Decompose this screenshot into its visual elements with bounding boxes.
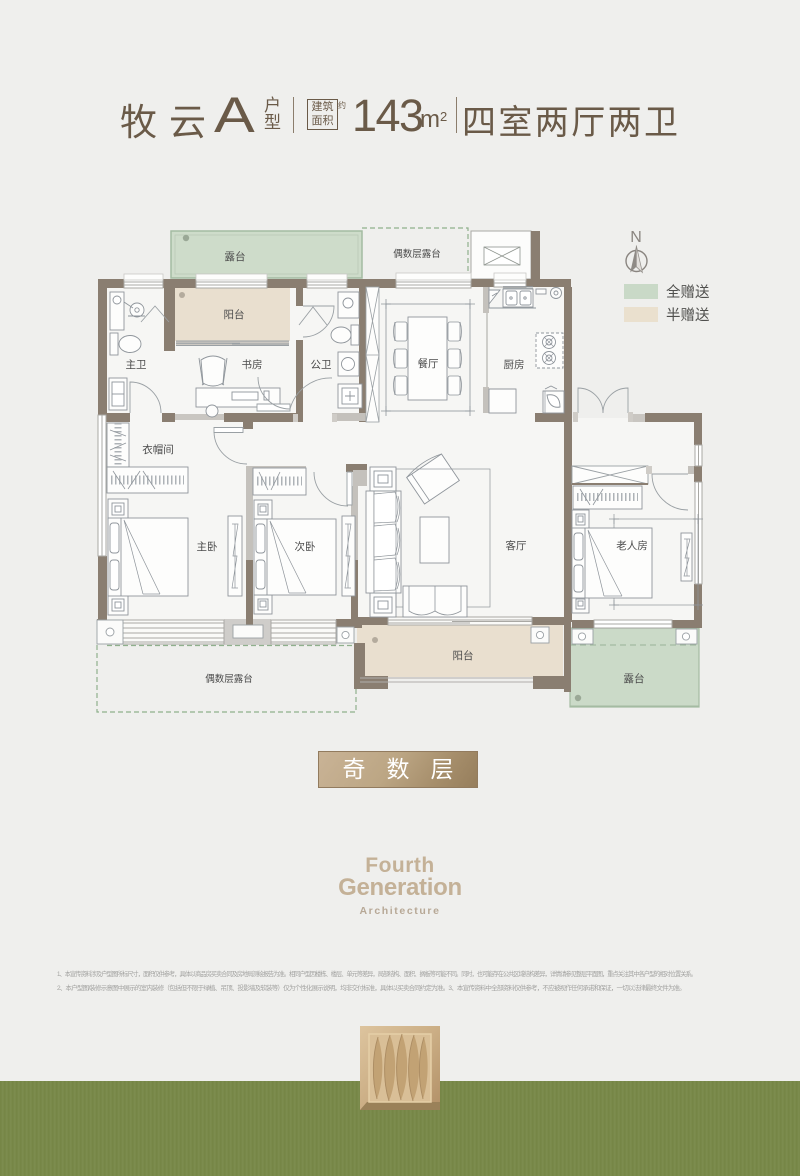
svg-text:阳台: 阳台 (224, 308, 245, 321)
svg-text:公卫: 公卫 (311, 359, 332, 371)
svg-text:半赠送: 半赠送 (666, 307, 710, 324)
svg-text:偶数层露台: 偶数层露台 (393, 248, 441, 260)
svg-text:N: N (630, 229, 642, 246)
svg-text:次卧: 次卧 (295, 540, 316, 553)
svg-text:露台: 露台 (225, 250, 246, 263)
svg-text:主卧: 主卧 (197, 540, 218, 553)
svg-text:全赠送: 全赠送 (666, 283, 710, 301)
svg-text:主卫: 主卫 (126, 359, 147, 371)
svg-text:露台: 露台 (624, 672, 645, 685)
svg-text:书房: 书房 (242, 358, 263, 371)
svg-text:阳台: 阳台 (453, 649, 474, 662)
svg-text:老人房: 老人房 (616, 539, 648, 552)
svg-text:餐厅: 餐厅 (418, 357, 439, 370)
svg-text:衣帽间: 衣帽间 (142, 443, 174, 456)
svg-text:偶数层露台: 偶数层露台 (205, 673, 253, 685)
svg-text:厨房: 厨房 (504, 358, 525, 371)
svg-text:客厅: 客厅 (506, 539, 527, 552)
